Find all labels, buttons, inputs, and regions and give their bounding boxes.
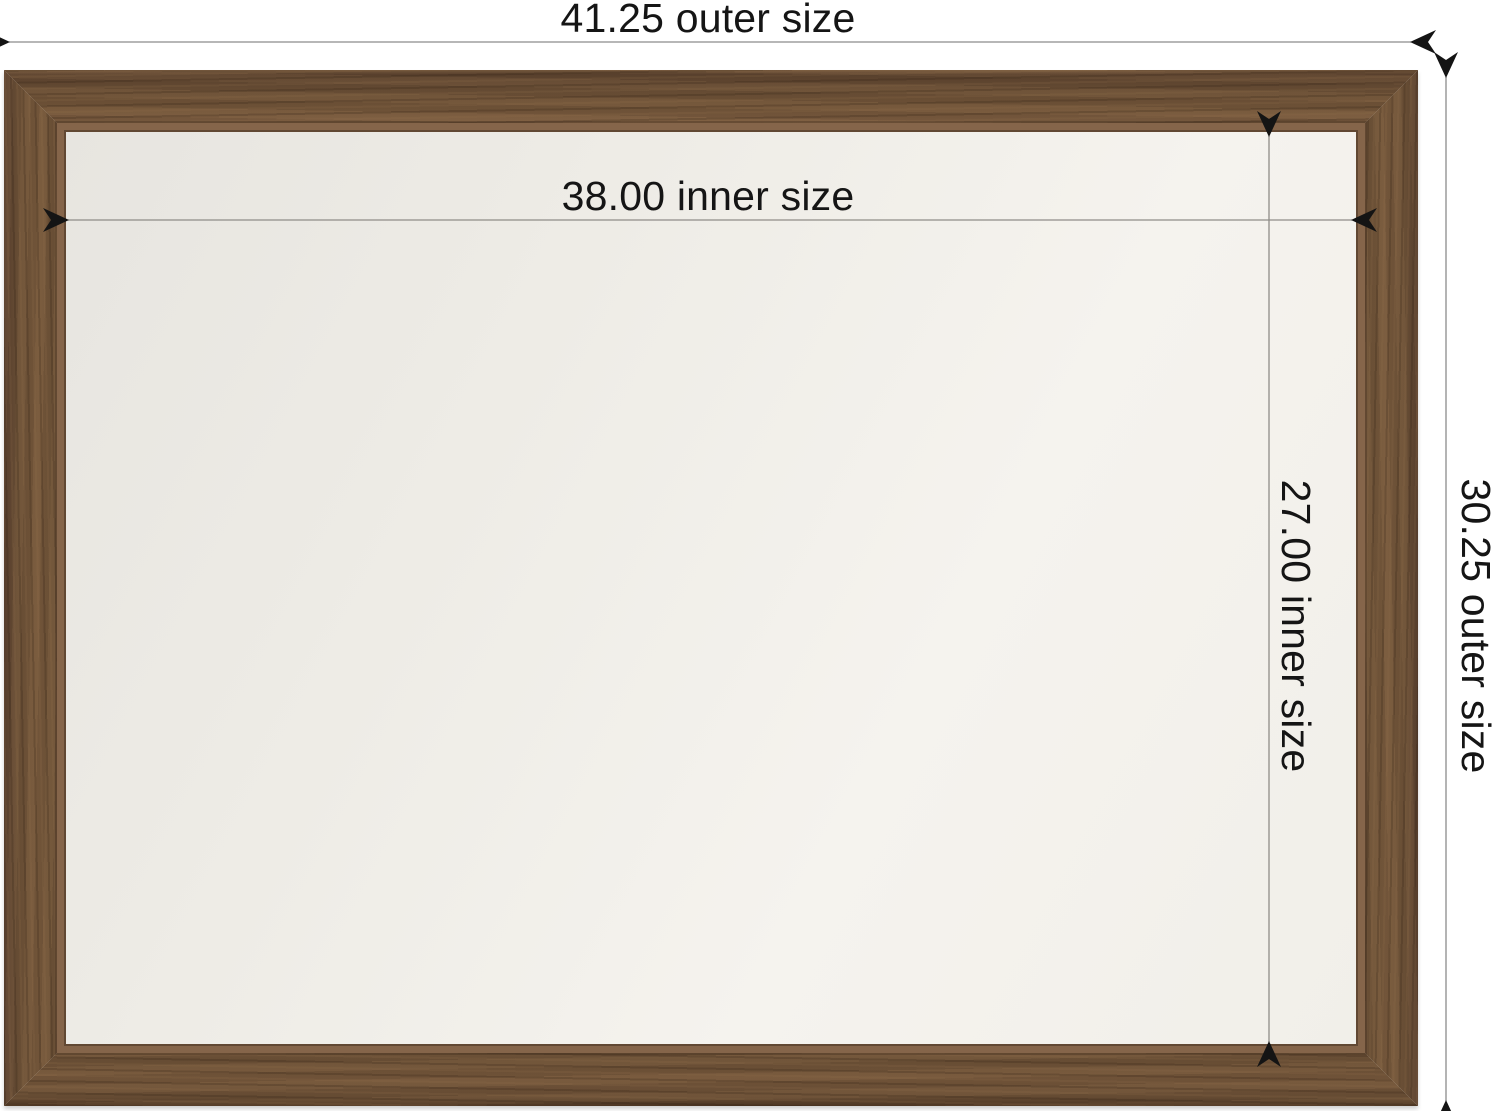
frame-left-rail (4, 70, 66, 1106)
frame-top-rail (4, 70, 1418, 132)
frame-bottom-rail (4, 1044, 1418, 1106)
inner-height-label: 27.00 inner size (1273, 466, 1319, 786)
frame-right-rail (1356, 70, 1418, 1106)
inner-width-label: 38.00 inner size (562, 176, 855, 217)
dimension-diagram: 41.25 outer size 38.00 inner size 27.00 … (0, 0, 1500, 1111)
mirror-frame (4, 70, 1418, 1106)
mirror-glass (66, 132, 1356, 1044)
outer-width-label: 41.25 outer size (561, 0, 856, 39)
outer-height-label: 30.25 outer size (1453, 466, 1499, 786)
